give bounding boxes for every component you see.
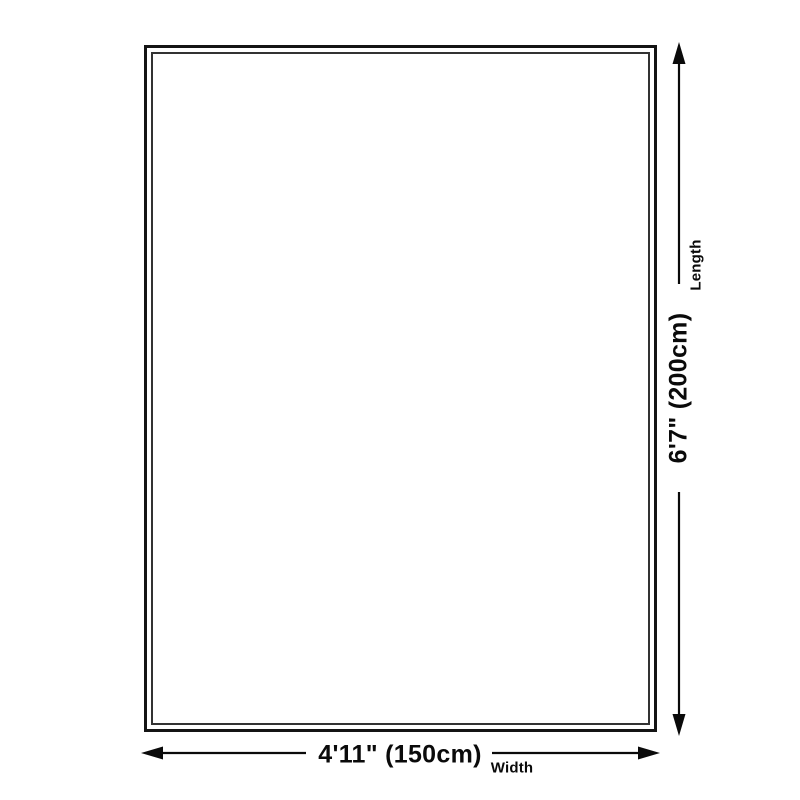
width-dimension-value: 4'11" (150cm) [318,743,481,768]
width-dimension-label: Width [491,761,534,776]
arrowhead-up-icon [673,42,686,64]
length-dimension-value: 6'7" (200cm) [667,313,692,464]
arrowhead-right-icon [638,747,660,760]
arrowhead-down-icon [673,714,686,736]
product-outline-inner [151,52,650,725]
product-outline [144,45,657,732]
arrowhead-left-icon [141,747,163,760]
dimension-diagram: 6'7" (200cm) Length 4'11" (150cm) Width [0,0,800,800]
length-dimension-label: Length [689,239,704,290]
